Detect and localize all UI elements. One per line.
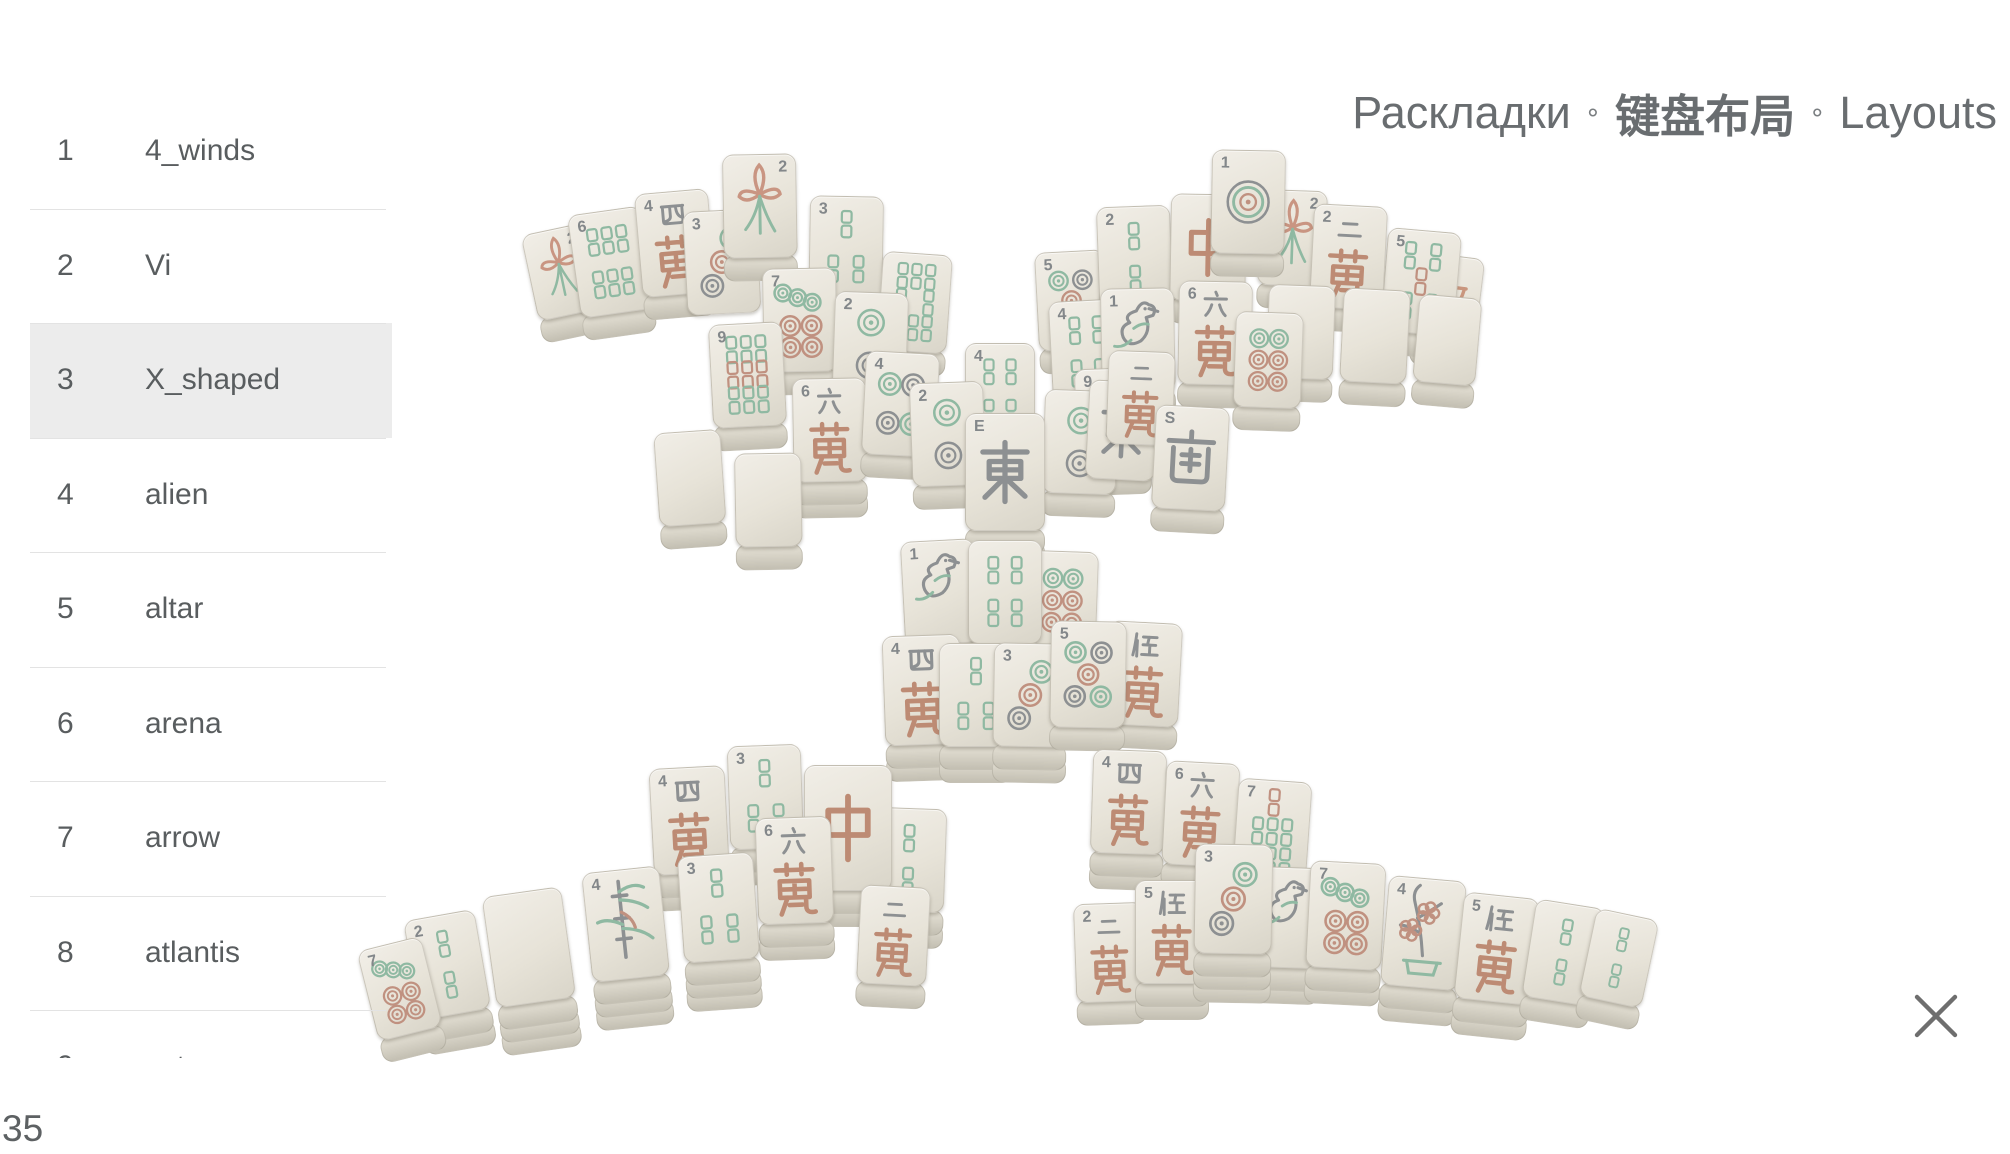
mahjong-tile-d2: 2: [909, 381, 987, 507]
layout-item-label: altar: [145, 592, 392, 626]
mahjong-tile-blank: [734, 452, 803, 566]
mahjong-tile-w6: 6: [755, 815, 836, 957]
mahjong-tile-bird: 1: [900, 538, 980, 665]
mahjong-tile-d6: [1025, 549, 1099, 669]
layout-item-label: 4_winds: [145, 134, 392, 168]
mahjong-tile-w4: 4: [634, 188, 718, 317]
mahjong-tile-w5: 5: [1450, 891, 1540, 1037]
page-title-english: Layouts: [1839, 87, 1997, 139]
mahjong-tile-b6: 6: [567, 205, 657, 337]
mahjong-tile-b2: 2: [1096, 205, 1174, 331]
mahjong-tile-lily: 2: [722, 153, 798, 277]
mahjong-tile-d1: 1: [1210, 149, 1286, 273]
mahjong-tile-nan: S: [1150, 404, 1230, 531]
layout-item-number: 4: [0, 478, 145, 512]
mahjong-tile-plant: 4: [581, 865, 675, 1027]
layout-item-label: atlantis: [145, 936, 392, 970]
mahjong-tile-w6: 6: [1159, 760, 1240, 900]
title-separator-icon: ∘: [1809, 97, 1825, 128]
layout-item-number: 9: [0, 1050, 145, 1058]
mahjong-tile-bird: 1: [1247, 865, 1324, 1000]
mahjong-tile-plum: 4: [1377, 875, 1467, 1023]
layout-item-number: 2: [0, 249, 145, 283]
mahjong-tile-zhong: [1169, 193, 1247, 320]
layout-item[interactable]: 5 altar: [0, 552, 392, 667]
mahjong-tile-d5: 5: [1049, 620, 1127, 747]
mahjong-tile-d3: 3: [992, 642, 1068, 779]
layout-item-number: 7: [0, 821, 145, 855]
layout-item-label: arena: [145, 707, 392, 741]
layout-list: 1 4_winds 2 Vi 3 X_shaped 4 alien 5 alta…: [0, 94, 392, 1058]
mahjong-tile-zhong: [804, 765, 892, 923]
mahjong-tile-b2: [869, 807, 948, 945]
mahjong-tile-w9: 9: [1074, 367, 1152, 493]
mahjong-tile-blank: [481, 886, 582, 1053]
mahjong-tile-d7: 7: [762, 267, 838, 391]
close-button[interactable]: [1905, 985, 1967, 1047]
mahjong-tile-d3: 3: [1193, 843, 1274, 999]
mahjong-tile-w4: 4: [648, 765, 731, 908]
layout-item-label: aztec: [145, 1050, 392, 1058]
mahjong-tile-b2: [1574, 908, 1659, 1028]
layout-item[interactable]: 1 4_winds: [0, 94, 392, 209]
layout-item-label: alien: [145, 478, 392, 512]
mahjong-tile-blank: [653, 429, 728, 546]
mahjong-tile-b3: [939, 643, 1013, 779]
mahjong-tile-w2: [855, 884, 931, 1006]
layout-item-label: arrow: [145, 821, 392, 855]
mahjong-tile-w6: 6: [1177, 280, 1253, 404]
mahjong-tile-b4: 4: [965, 343, 1035, 448]
mahjong-tile-b5: 5: [1378, 227, 1462, 356]
page-title-russian: Раскладки: [1352, 87, 1571, 139]
mahjong-tile-bird: 1: [1100, 287, 1176, 411]
mahjong-tile-b3: 3: [677, 851, 763, 1008]
mahjong-tile-lily: 2: [1256, 189, 1328, 306]
page-title: Раскладки ∘ 键盘布局 ∘ Layouts: [1352, 80, 1997, 145]
mahjong-tile-b3: 3: [808, 195, 884, 319]
mahjong-tile-blank: [1338, 287, 1411, 403]
layout-item[interactable]: 2 Vi: [0, 209, 392, 324]
mahjong-tile-d6: [1232, 311, 1304, 428]
mahjong-tile-w5: 5: [1135, 880, 1209, 1016]
mahjong-tile-d2: 2: [831, 291, 909, 417]
layout-item-number: 3: [0, 363, 145, 397]
layout-item-label: Vi: [145, 249, 392, 283]
mahjong-tile-w5: [1103, 620, 1183, 747]
mahjong-tile-dong: [1084, 379, 1159, 488]
layout-item[interactable]: 8 atlantis: [0, 896, 392, 1011]
mahjong-tile-b4: [968, 540, 1042, 676]
mahjong-tile-blank: [1265, 284, 1336, 399]
mahjong-tile-d3: 3: [682, 208, 762, 322]
close-icon: [1905, 985, 1967, 1047]
layout-item-number: 5: [0, 592, 145, 626]
mahjong-tile-b2: 2: [403, 908, 497, 1051]
page-title-chinese: 键盘布局: [1615, 80, 1795, 145]
mahjong-tile-w2: [1105, 350, 1175, 452]
title-separator-icon: ∘: [1585, 97, 1601, 128]
layout-item-number: 6: [0, 707, 145, 741]
layout-item[interactable]: 4 alien: [0, 438, 392, 553]
mahjong-tile-w6: 6: [792, 377, 868, 514]
mahjong-tile-b9: 9: [708, 321, 788, 448]
layout-item-number: 1: [0, 134, 145, 168]
mahjong-tile-b8: [875, 250, 953, 373]
layout-item[interactable]: 7 arrow: [0, 781, 392, 896]
mahjong-tile-b7: 7: [1229, 778, 1312, 919]
mahjong-tile-b2: [1518, 898, 1606, 1025]
mahjong-tile-lily: 2: [520, 223, 604, 341]
mahjong-tile-w4: 4: [882, 634, 965, 779]
mahjong-tile-b3: 3: [727, 744, 806, 882]
mahjong-tile-qiu: [1409, 252, 1486, 368]
layout-count: 35: [2, 1108, 43, 1150]
mahjong-tile-w4: 4: [1089, 749, 1168, 887]
mahjong-tile-dong: E: [965, 413, 1045, 563]
mahjong-tile-blank: [1410, 293, 1482, 405]
layout-item[interactable]: 9 aztec: [0, 1010, 392, 1058]
mahjong-tile-d2: [1041, 389, 1119, 515]
mahjong-tile-d5: 5: [1034, 249, 1110, 371]
mahjong-tile-w2: 2: [1073, 901, 1147, 1021]
layout-item-label: X_shaped: [145, 363, 392, 397]
layout-item[interactable]: 6 arena: [0, 667, 392, 782]
mahjong-tile-w2: 2: [1308, 203, 1388, 330]
mahjong-tile-d7: 7: [1303, 860, 1386, 1003]
layout-item[interactable]: 3 X_shaped: [0, 323, 392, 438]
mahjong-tile-b4: 4: [1048, 298, 1128, 425]
mahjong-tile-d4: 4: [860, 350, 940, 477]
layout-item-number: 8: [0, 936, 145, 970]
